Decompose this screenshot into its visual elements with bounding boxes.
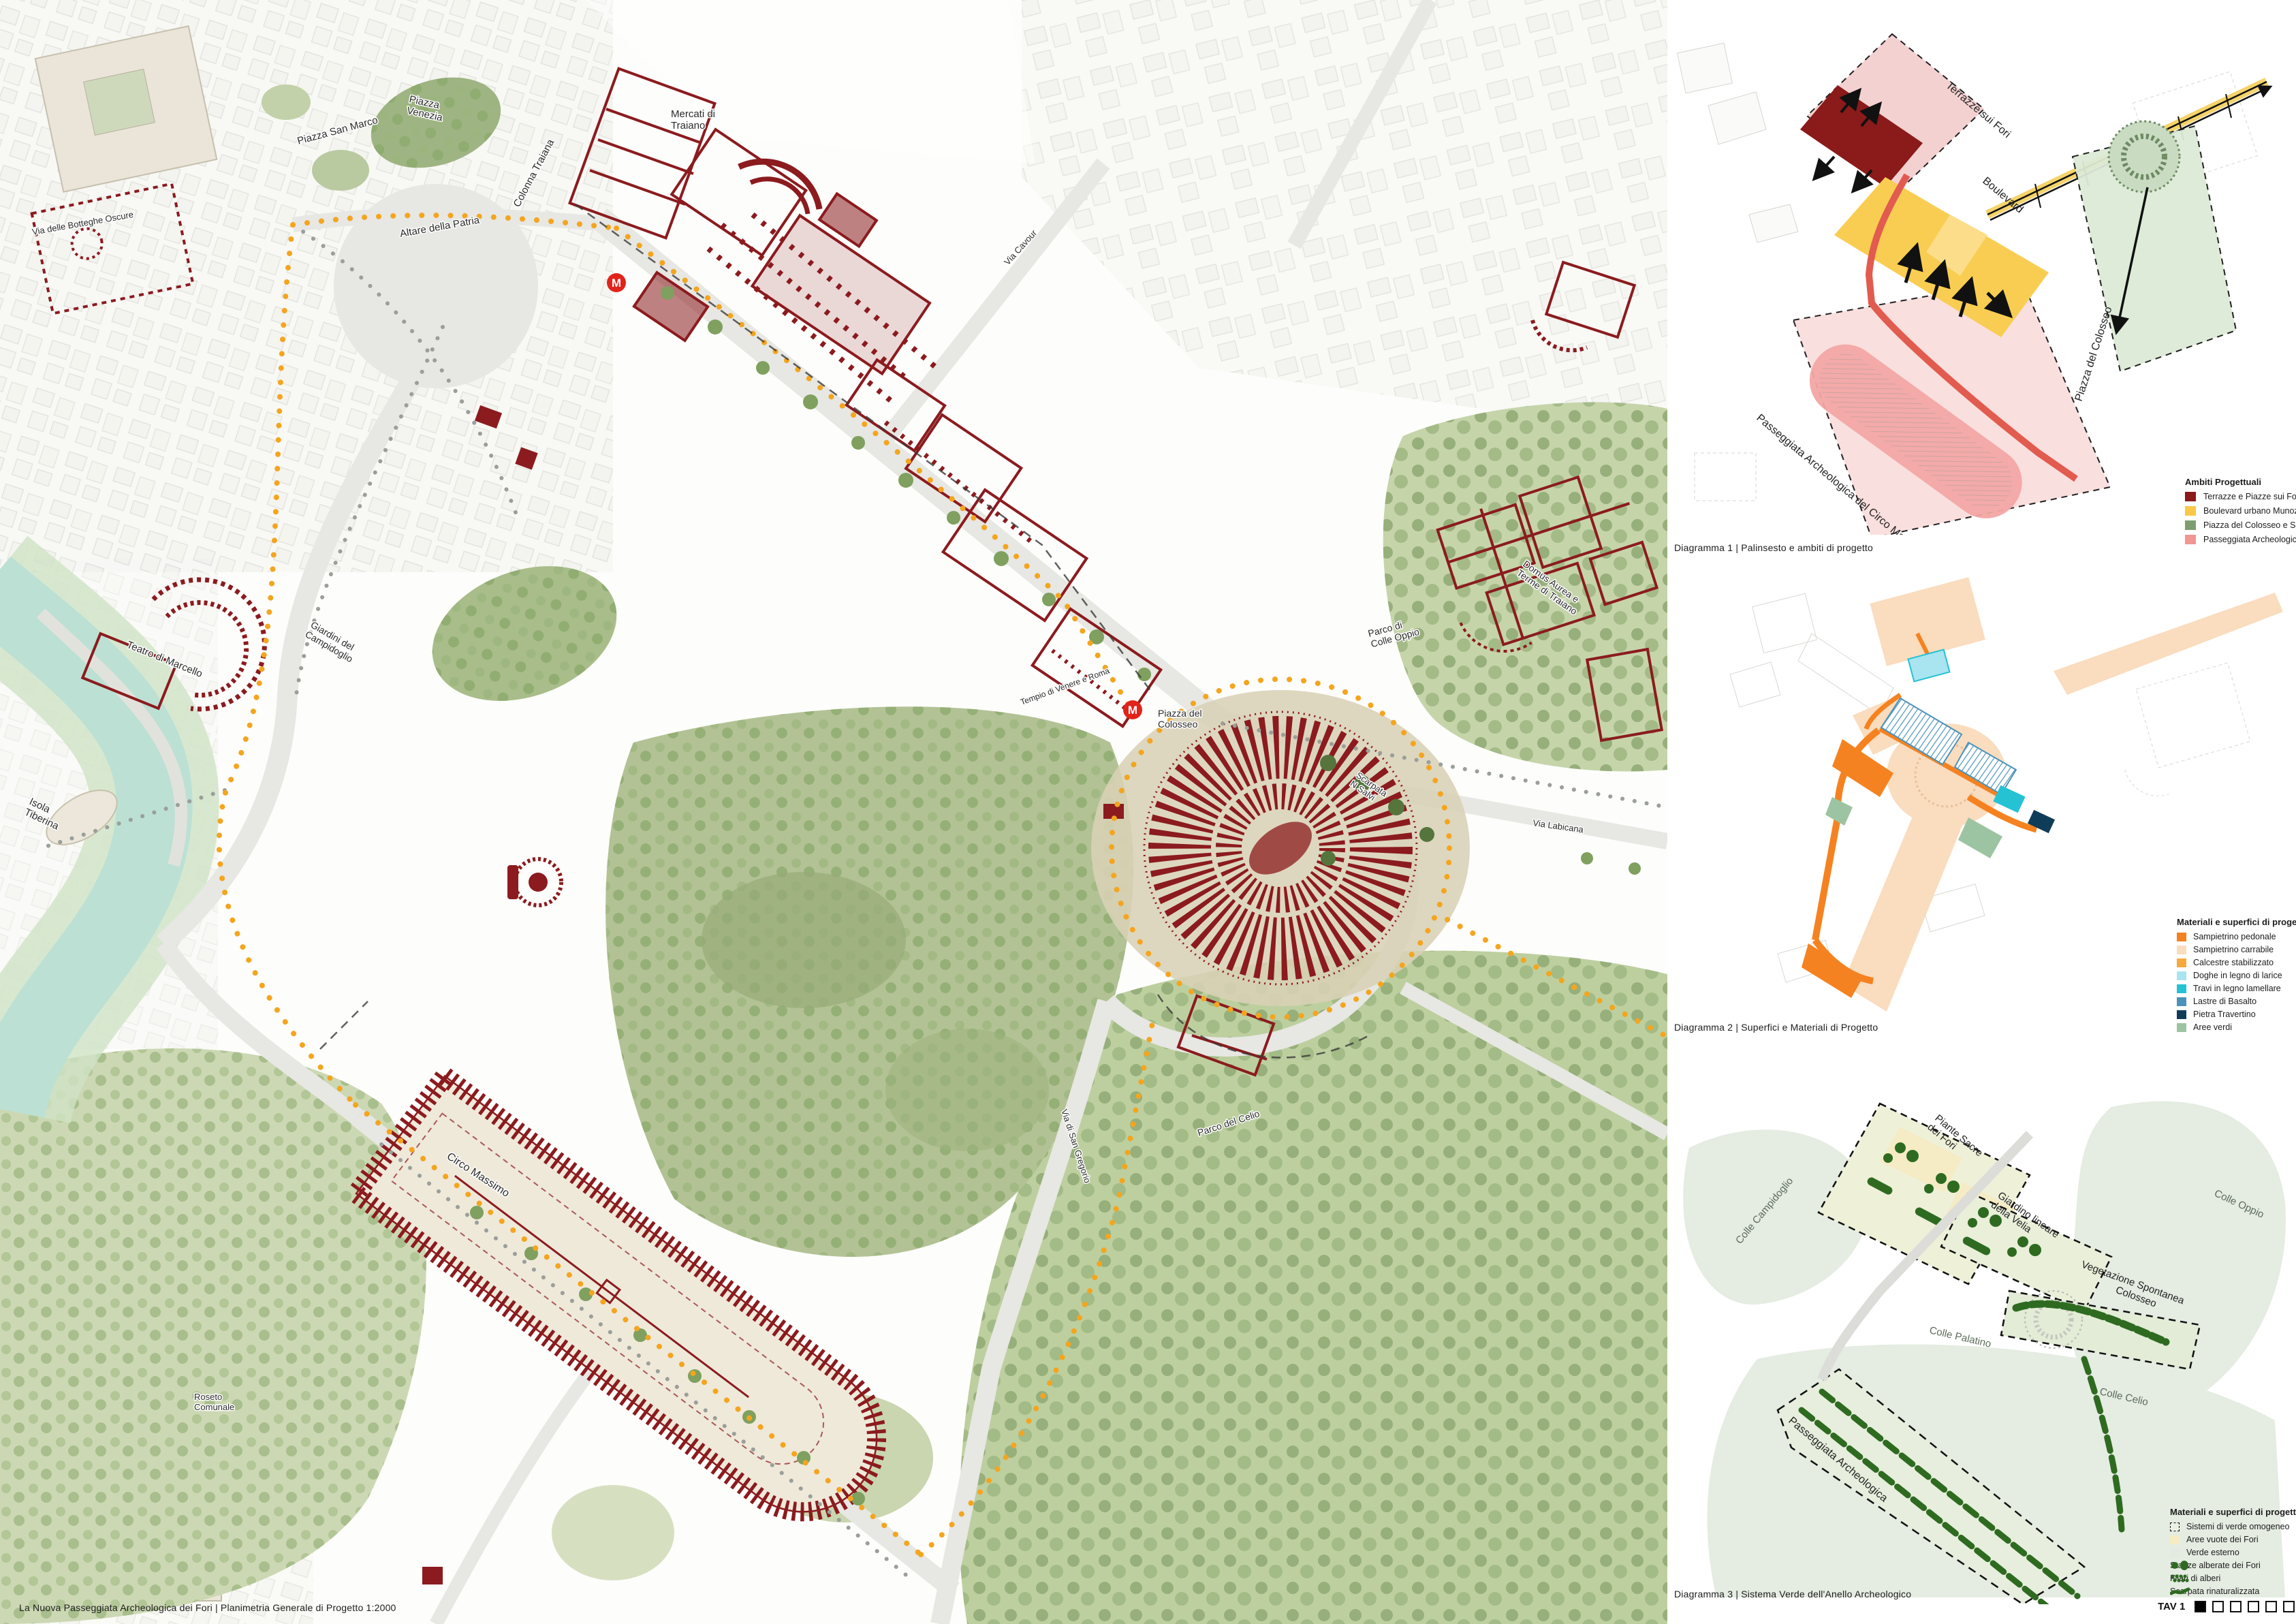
legend-item: Doghe in legno di larice	[2177, 971, 2296, 980]
legend-item: Piazza del Colosseo e Scarpata	[2185, 520, 2296, 530]
label-piazza-del-colosseo: Piazza delColosseo	[1158, 708, 1202, 730]
tav-tile	[2265, 1601, 2277, 1612]
legend-swatch	[2177, 1010, 2186, 1019]
legend-item: Sampietrino pedonale	[2177, 932, 2296, 941]
legend-title: Materiali e superfici di progetto	[2170, 1507, 2296, 1517]
metro-label: M	[1128, 704, 1137, 717]
legend-swatch-tree-row	[2170, 1573, 2190, 1584]
diagram-1: Terrazze sui Fori Boulevard Piazza del C…	[1667, 10, 2289, 535]
legend-swatch	[2170, 1535, 2180, 1544]
legend-item: Aree vuote dei Fori	[2170, 1535, 2296, 1544]
legend-item: Sistemi di verde omogeneo	[2170, 1522, 2296, 1531]
legend-title: Ambiti Progettuali	[2185, 477, 2296, 487]
legend-swatch	[2177, 1023, 2186, 1032]
legend-swatch	[2177, 946, 2186, 954]
legend-swatch	[2185, 520, 2196, 530]
legend-item: Lastre di Basalto	[2177, 997, 2296, 1006]
d1-passeggiata-band	[1793, 279, 2110, 535]
d1-label-piazza-colosseo: Piazza del Colosseo	[2073, 305, 2115, 403]
diagram-1-caption: Diagramma 1 | Palinsesto e ambiti di pro…	[1674, 542, 1873, 553]
main-map-caption: La Nuova Passeggiata Archeologica dei Fo…	[19, 1602, 396, 1613]
tav-tile	[2212, 1601, 2224, 1612]
legend-item: Scarpata rinaturalizzata	[2170, 1587, 2296, 1596]
legend-swatch	[2177, 958, 2186, 967]
legend-swatch-tree-blobs	[2170, 1560, 2190, 1571]
tav-tiles	[2195, 1601, 2295, 1612]
legend-swatch	[2177, 997, 2186, 1006]
legend-title: Materiali e superfici di progetto	[2177, 917, 2296, 927]
legend-swatch	[2170, 1548, 2180, 1557]
legend-swatch	[2185, 535, 2196, 544]
metro-label: M	[612, 277, 621, 290]
legend-swatch-dashed-box	[2170, 1522, 2180, 1531]
legend-swatch-scarpata-stroke	[2170, 1586, 2190, 1597]
legend-item: Aree verdi	[2177, 1022, 2296, 1032]
legend-swatch	[2185, 492, 2196, 501]
legend-item: Sampietrino carrabile	[2177, 945, 2296, 954]
legend-materiali-superfici: Materiali e superfici di progetto Sampie…	[2177, 917, 2296, 1035]
legend-swatch	[2185, 506, 2196, 516]
legend-item: Stanze alberate dei Fori	[2170, 1561, 2296, 1570]
legend-swatch	[2177, 971, 2186, 980]
legend-item: Pietra Travertino	[2177, 1010, 2296, 1019]
tav-tile	[2230, 1601, 2242, 1612]
tav-tile	[2283, 1601, 2295, 1612]
diagram-2-caption: Diagramma 2 | Superfici e Materiali di P…	[1674, 1022, 1878, 1033]
presentation-board: M M PiazzaVenezia Piazza San Marco Altar…	[0, 0, 2296, 1624]
d1-terrazze	[1800, 34, 1984, 191]
diagram-3-caption: Diagramma 3 | Sistema Verde dell'Anello …	[1674, 1589, 1911, 1599]
legend-item: Passeggiata Archeologica	[2185, 535, 2296, 544]
legend-item: Terrazze e Piazze sui Fori	[2185, 492, 2296, 501]
legend-ambiti-progettuali: Ambiti Progettuali Terrazze e Piazze sui…	[2185, 477, 2296, 549]
legend-sistema-verde: Materiali e superfici di progetto Sistem…	[2170, 1507, 2296, 1599]
tav-tile-active	[2195, 1601, 2206, 1612]
tav-marker: TAV 1	[2158, 1601, 2295, 1612]
legend-item: Travi in legno lamellare	[2177, 984, 2296, 993]
legend-item: Boulevard urbano Munoz	[2185, 506, 2296, 516]
legend-swatch	[2177, 933, 2186, 941]
legend-item: Verde esterno	[2170, 1548, 2296, 1557]
legend-item: Filari di alberi	[2170, 1574, 2296, 1583]
main-map: M M PiazzaVenezia Piazza San Marco Altar…	[0, 0, 1667, 1624]
legend-swatch	[2177, 984, 2186, 993]
legend-item: Calcestre stabilizzato	[2177, 958, 2296, 967]
colosseum	[1091, 690, 1470, 1006]
tav-label: TAV 1	[2158, 1601, 2185, 1612]
tav-tile	[2248, 1601, 2259, 1612]
